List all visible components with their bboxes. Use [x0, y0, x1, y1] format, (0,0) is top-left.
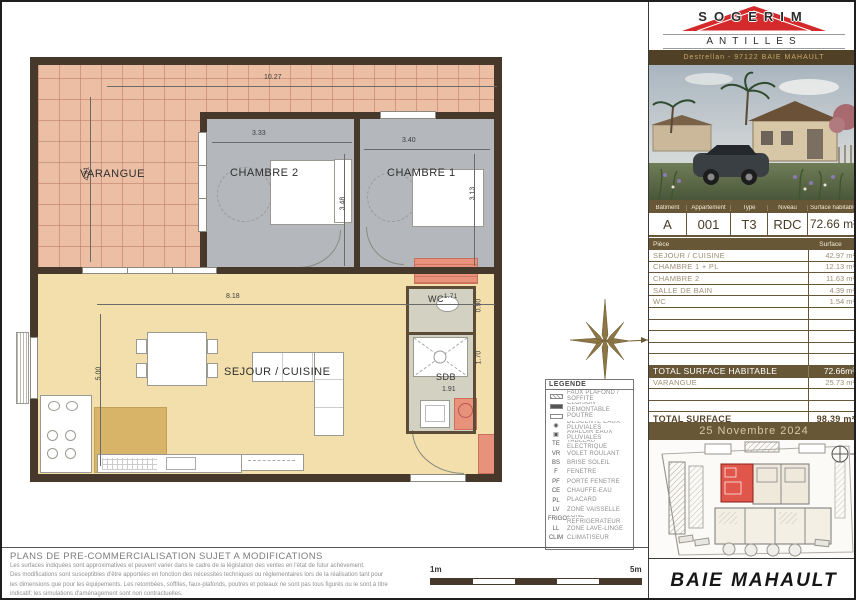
kitchen-sink-bowl — [48, 401, 60, 411]
chambre2-placard — [334, 159, 352, 223]
entry-door-gap — [410, 474, 466, 482]
sejour-label: SEJOUR / CUISINE — [224, 366, 330, 378]
disclaimer: PLANS DE PRE-COMMERCIALISATION SUJET A M… — [2, 547, 648, 600]
tv-stand — [239, 454, 304, 471]
sdb-sink — [420, 400, 450, 428]
hatch-swatch-icon — [550, 394, 563, 399]
entry-cabinet — [478, 434, 495, 474]
unit-col-batiment: Bâtiment — [649, 205, 687, 211]
dim-wc-h: 0.90 — [475, 299, 482, 313]
dim-sejour-w: 8.18 — [226, 293, 240, 300]
legend-item: FRIGOZONE REFRIGERATEUR — [546, 515, 633, 524]
legend-item: CLIMCLIMATISEUR — [546, 533, 633, 542]
dim-sejour-h: 5.00 — [95, 367, 102, 381]
city-bar: BAIE MAHAULT — [649, 558, 856, 600]
chambre2-label: CHAMBRE 2 — [230, 167, 299, 179]
date-bar: 25 Novembre 2024 — [649, 422, 856, 440]
unit-batiment: A — [649, 213, 687, 235]
legend-title: LEGENDE — [546, 380, 633, 390]
surface-row: WC1.54 m² — [649, 296, 856, 308]
dim-chambre2-h: 3.48 — [339, 197, 346, 211]
legend-item: TETABLEAU ELECTRIQUE — [546, 440, 633, 449]
shower-tray-icon — [414, 338, 467, 376]
scale-min-label: 1m — [430, 565, 442, 574]
surface-row: SEJOUR / CUISINE42.97 m² — [649, 250, 856, 262]
scale-bar — [430, 578, 642, 585]
surface-row — [649, 320, 856, 332]
sejour-window-left — [30, 337, 38, 399]
unit-appartement: 001 — [687, 213, 731, 235]
chambre1-window — [380, 111, 436, 119]
plan-sheet: 10.27 4.91 3.33 3.40 3.48 3.13 8.18 5.00… — [0, 0, 856, 600]
col-piece: Pièce — [653, 241, 669, 248]
legend-item: ▣AVALOIR EAUX PLUVIALES — [546, 430, 633, 439]
unit-col-appartement: Appartement — [687, 205, 731, 211]
dim-chambre1-w: 3.40 — [402, 137, 416, 144]
legend-item: CECHAUFFE-EAU — [546, 487, 633, 496]
sofa-right — [314, 352, 344, 436]
dim-chambre2-w: 3.33 — [252, 130, 266, 137]
stove-burner — [47, 448, 58, 459]
unit-niveau: RDC — [768, 213, 808, 235]
dining-chair — [136, 363, 147, 378]
surface-row: CHAMBRE 1 + PL12.13 m² — [649, 262, 856, 274]
legend: LEGENDE FAUX PLAFOND / SOFFITECLOISON DE… — [545, 379, 634, 550]
surface-table-header: Pièce Surface — [649, 238, 856, 250]
brand-region: ANTILLES — [663, 34, 845, 49]
dim-chambre1-h: 3.13 — [469, 187, 476, 201]
kitchen-counter-bottom — [97, 454, 242, 473]
surface-row — [649, 308, 856, 320]
surface-row — [649, 401, 856, 413]
chambre1-clim-circle — [367, 172, 417, 222]
surface-row — [649, 354, 856, 366]
wc-label: WC1.71 — [428, 294, 458, 304]
surface-row — [649, 343, 856, 355]
residence-photo — [649, 65, 856, 200]
surface-row: CHAMBRE 211.63 m² — [649, 273, 856, 285]
bay-window — [82, 267, 217, 274]
legend-item: ◉DESCENTE EAUX PLUVIALES — [546, 421, 633, 430]
chambre1-label: CHAMBRE 1 — [387, 167, 456, 179]
unit-col-type: Type — [731, 205, 768, 211]
chambre2-window — [198, 132, 207, 232]
disclaimer-title: PLANS DE PRE-COMMERCIALISATION SUJET A M… — [10, 551, 640, 562]
floor-plan: 10.27 4.91 3.33 3.40 3.48 3.13 8.18 5.00… — [2, 2, 648, 547]
surface-row: VARANGUE25.73 m² — [649, 378, 856, 390]
dim-line — [107, 86, 497, 87]
legend-item: FAUX PLAFOND / SOFFITE — [546, 390, 633, 402]
legend-item: BSBRISE SOLEIL — [546, 458, 633, 467]
brand-name: SOGERIM — [649, 9, 856, 24]
dining-chair — [136, 339, 147, 354]
surface-row: SALLE DE BAIN4.39 m² — [649, 285, 856, 297]
info-panel: SOGERIM L'IMMOBILIER CONTEMPORAIN ANTILL… — [648, 2, 856, 600]
stove-burner — [65, 448, 76, 459]
legend-item: LLZONE LAVE-LINGE — [546, 524, 633, 533]
unit-surface: 72.66 m² — [808, 213, 856, 235]
address-bar: Destrellan - 97122 BAIE MAHAULT — [649, 50, 856, 65]
legend-item: PLPLACARD — [546, 496, 633, 505]
surface-row: TOTAL SURFACE HABITABLE72.66m² — [649, 366, 856, 378]
legend-item: POUTRE — [546, 411, 633, 420]
solid-swatch-icon — [550, 404, 563, 409]
legend-item: FFENETRE — [546, 468, 633, 477]
city-name: BAIE MAHAULT — [670, 570, 837, 592]
legend-item: VRVOLET ROULANT — [546, 449, 633, 458]
legend-item: PFPORTE FENETRE — [546, 477, 633, 486]
site-plan — [649, 440, 856, 558]
shower — [413, 337, 468, 377]
dining-chair — [207, 363, 218, 378]
unit-table: Bâtiment Appartement Type Niveau Surface… — [649, 200, 856, 426]
dining-table — [147, 332, 207, 386]
unit-col-niveau: Niveau — [768, 205, 808, 211]
surface-row — [649, 389, 856, 401]
brand-tagline: L'IMMOBILIER CONTEMPORAIN — [675, 27, 832, 32]
sdb-label: SDB — [436, 372, 456, 382]
dim-sdb-h: 1.70 — [475, 351, 482, 365]
beam-swatch-icon — [550, 414, 563, 419]
brise-soleil — [16, 332, 29, 404]
legend-item: LVZONE VAISSELLE — [546, 505, 633, 514]
stove-burner — [65, 430, 76, 441]
scale-max-label: 5m — [630, 565, 642, 574]
wc-dim: 1.71 — [444, 294, 458, 300]
compass-rose-icon — [560, 298, 650, 382]
stove-burner — [47, 430, 58, 441]
dim-sdb-w: 1.91 — [442, 386, 456, 393]
dining-chair — [207, 339, 218, 354]
unit-type: T3 — [731, 213, 768, 235]
col-surface: Surface — [806, 241, 855, 248]
unit-col-surface: Surface habitable — [808, 205, 856, 211]
dim-top-width: 10.27 — [264, 74, 282, 81]
surface-table: SEJOUR / CUISINE42.97 m²CHAMBRE 1 + PL12… — [649, 250, 856, 426]
legend-item: CLOISON DEMONTABLE — [546, 402, 633, 411]
surface-row — [649, 331, 856, 343]
varangue-label: VARANGUE — [80, 168, 145, 180]
kitchen-sink-bowl — [66, 401, 78, 411]
